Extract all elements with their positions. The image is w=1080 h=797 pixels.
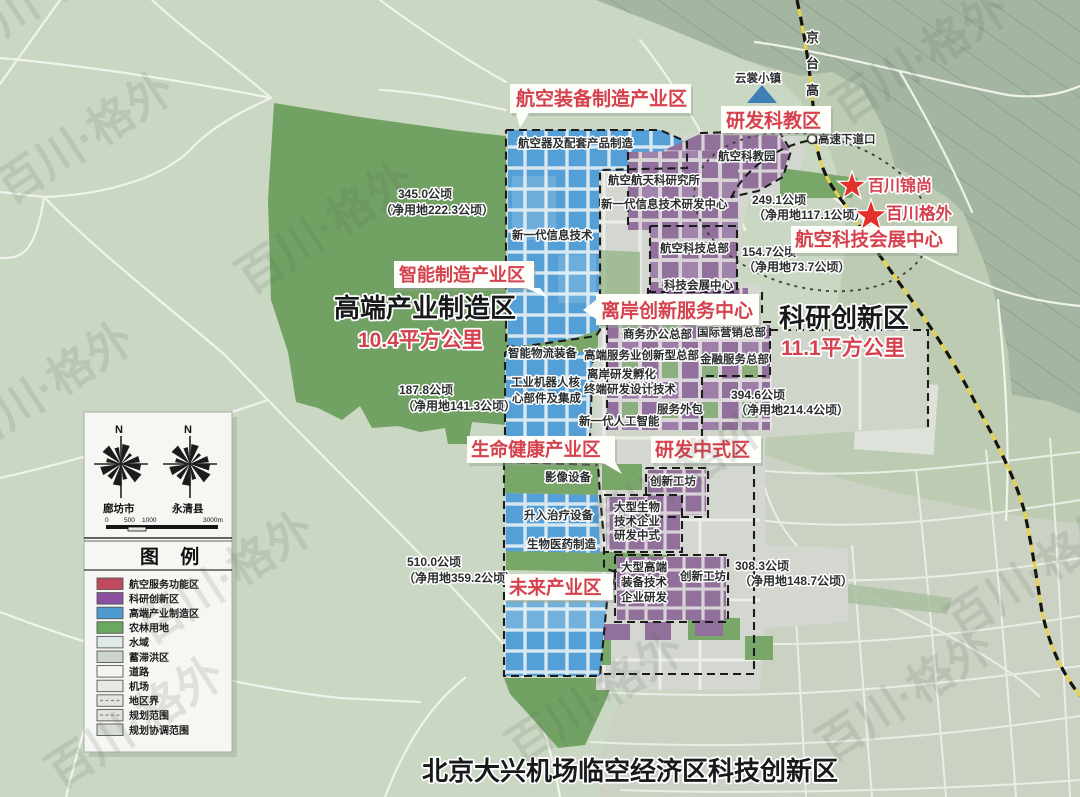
svg-text:510.0公顷: 510.0公顷 xyxy=(407,555,461,569)
svg-text:N: N xyxy=(115,424,123,436)
svg-text:高: 高 xyxy=(806,83,819,98)
svg-text:394.6公顷: 394.6公顷 xyxy=(731,388,785,402)
svg-text:廊坊市: 廊坊市 xyxy=(103,502,135,515)
svg-text:（净用地148.7公顷）: （净用地148.7公顷） xyxy=(739,573,853,588)
svg-text:心部件及集成: 心部件及集成 xyxy=(512,391,581,405)
svg-text:工业机器人核: 工业机器人核 xyxy=(511,375,580,389)
svg-text:新一代信息技术研发中心: 新一代信息技术研发中心 xyxy=(601,197,728,211)
svg-text:高端服务业创新型总部: 高端服务业创新型总部 xyxy=(584,348,699,362)
svg-text:科研创新区: 科研创新区 xyxy=(779,303,909,333)
svg-text:台: 台 xyxy=(806,56,819,71)
svg-text:北京大兴机场临空经济区科技创新区: 北京大兴机场临空经济区科技创新区 xyxy=(422,756,838,786)
svg-text:187.8公顷: 187.8公顷 xyxy=(399,383,453,397)
svg-text:商务办公总部: 商务办公总部 xyxy=(623,327,692,341)
svg-text:生物医药制造: 生物医药制造 xyxy=(527,537,596,551)
svg-text:云裳小镇: 云裳小镇 xyxy=(735,71,781,85)
svg-text:永清县: 永清县 xyxy=(171,502,204,515)
svg-text:生命健康产业区: 生命健康产业区 xyxy=(471,439,601,460)
svg-text:百川锦尚: 百川锦尚 xyxy=(868,176,932,195)
svg-text:航空科技会展中心: 航空科技会展中心 xyxy=(795,229,944,250)
svg-text:蓄滞洪区: 蓄滞洪区 xyxy=(129,651,169,664)
svg-text:百川格外: 百川格外 xyxy=(886,203,953,223)
svg-text:高端产业制造区: 高端产业制造区 xyxy=(334,293,516,323)
svg-text:新一代信息技术: 新一代信息技术 xyxy=(512,228,593,242)
svg-text:（净用地359.2公顷）: （净用地359.2公顷） xyxy=(403,570,517,585)
svg-text:11.1平方公里: 11.1平方公里 xyxy=(781,336,905,360)
svg-text:航空航天科研究所: 航空航天科研究所 xyxy=(608,173,700,187)
svg-text:航空科技总部: 航空科技总部 xyxy=(660,241,729,255)
svg-text:（净用地141.3公顷）: （净用地141.3公顷） xyxy=(402,398,516,413)
svg-text:智能制造产业区: 智能制造产业区 xyxy=(399,264,525,285)
svg-text:创新工坊: 创新工坊 xyxy=(679,569,726,583)
svg-text:未来产业区: 未来产业区 xyxy=(508,577,602,598)
svg-text:京: 京 xyxy=(806,30,819,45)
svg-text:3000m: 3000m xyxy=(203,517,223,524)
svg-text:离岸研发孵化: 离岸研发孵化 xyxy=(587,367,656,381)
svg-text:154.7公顷: 154.7公顷 xyxy=(742,245,796,259)
svg-text:航空器及配套产品制造: 航空器及配套产品制造 xyxy=(518,136,633,150)
svg-text:（净用地73.7公顷）: （净用地73.7公顷） xyxy=(743,259,850,274)
svg-text:终端研发设计技术: 终端研发设计技术 xyxy=(584,382,676,396)
svg-text:新一代人工智能: 新一代人工智能 xyxy=(579,414,660,428)
svg-text:1000: 1000 xyxy=(142,517,157,524)
svg-text:0: 0 xyxy=(105,517,109,524)
svg-text:500: 500 xyxy=(124,517,135,524)
svg-text:航空科教园: 航空科教园 xyxy=(718,149,776,163)
svg-text:服务外包: 服务外包 xyxy=(657,402,703,416)
svg-text:（净用地117.1公顷）: （净用地117.1公顷） xyxy=(753,207,866,222)
svg-text:企业研发: 企业研发 xyxy=(620,590,667,604)
svg-text:智能物流装备: 智能物流装备 xyxy=(508,346,577,360)
svg-text:科技会展中心: 科技会展中心 xyxy=(664,278,733,292)
svg-text:研发科教区: 研发科教区 xyxy=(726,109,821,132)
svg-text:金融服务总部: 金融服务总部 xyxy=(699,352,769,366)
svg-text:影像设备: 影像设备 xyxy=(545,470,591,484)
svg-text:道路: 道路 xyxy=(129,665,150,678)
svg-text:大型高端: 大型高端 xyxy=(621,560,667,574)
svg-text:249.1公顷: 249.1公顷 xyxy=(752,193,806,207)
svg-text:离岸创新服务中心: 离岸创新服务中心 xyxy=(601,299,753,322)
svg-text:装备技术: 装备技术 xyxy=(620,575,667,589)
svg-text:308.3公顷: 308.3公顷 xyxy=(735,559,789,573)
svg-text:10.4平方公里: 10.4平方公里 xyxy=(358,328,483,352)
svg-text:N: N xyxy=(184,424,192,436)
svg-text:航空装备制造产业区: 航空装备制造产业区 xyxy=(516,87,687,110)
